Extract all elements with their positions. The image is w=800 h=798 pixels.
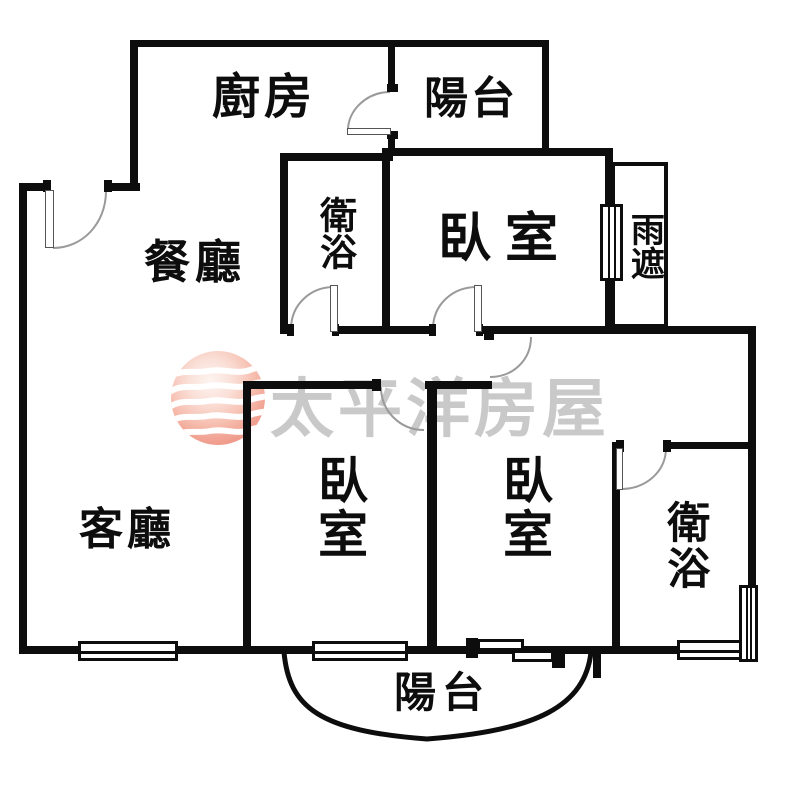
bedroom-left-door-arc [381,387,424,430]
wall-middle-seg3 [479,326,756,334]
wall-bedroom-separator [427,381,437,654]
room-label-balcony-bottom: 陽台 [394,671,490,715]
room-label-dining-room: 餐廳 [144,239,246,287]
bedtop-jamb-left [429,324,436,336]
room-label-rain-cover: 雨遮 [626,212,661,280]
kitchen-balcony-door-leaf [347,128,391,135]
bathtop-jamb-left [287,324,294,336]
wall-top-outer [130,40,549,47]
wall-bathroom-top-top [280,153,393,161]
corridor-door-hinge [484,328,494,340]
corridor-door-arc [490,337,531,377]
floor-plan: 太平洋房屋 [0,0,800,798]
bedleft-jamb [372,379,381,391]
room-label-kitchen: 廚房 [212,73,316,123]
entry-door-arc [53,191,106,248]
room-label-bedroom-top: 臥室 [438,211,572,266]
room-label-living-room: 客廳 [79,507,175,553]
wall-balcony-top-bottom [382,148,613,156]
wall-left-outer [19,183,27,654]
wall-bathroom-top-right [382,153,390,334]
bedroom-left-window [312,641,408,661]
room-label-bedroom-middle: 臥室 [498,454,550,562]
entry-door-leaf [45,190,54,248]
wall-middle-seg2 [335,326,432,334]
living-room-window [78,641,178,661]
wall-bathroom-bottom-top [663,442,750,449]
bathroom-bottom-door-arc [622,448,666,489]
wall-bathroom-top-left [280,155,288,334]
sliding-door-cap-left [466,638,478,658]
bathroom-bottom-window [677,640,747,660]
bedroom-top-door-leaf [474,285,482,332]
bathbottom-jamb-right [663,440,671,452]
wall-balcony-right-stub [593,654,601,678]
entry-jamb-right [104,180,112,192]
sliding-door-panel-2 [512,650,554,662]
bedroom-top-door-arc [433,287,477,329]
sliding-door-cap-right [552,646,565,668]
bathroom-right-window [739,585,758,662]
wall-bedroom-left-left [243,381,251,654]
bedroom-top-window [600,204,623,281]
balcony-jamb-top [387,84,398,92]
room-label-balcony-top: 陽台 [424,76,518,122]
room-label-bathroom-bottom: 衛浴 [662,500,707,592]
room-label-bathroom-top: 衛浴 [315,196,353,270]
bathroom-top-door-leaf [330,285,338,332]
room-label-bedroom-left: 臥室 [313,454,365,562]
wall-lower-top-seg1 [243,381,380,389]
kitchen-balcony-door-arc [348,92,390,130]
bathroom-top-door-arc [291,287,334,329]
wall-balcony-top-right [542,40,549,155]
bathroom-bottom-door-leaf [616,448,623,490]
wall-balcony-top-left-a [388,40,395,89]
wall-kitchen-left [130,40,138,191]
